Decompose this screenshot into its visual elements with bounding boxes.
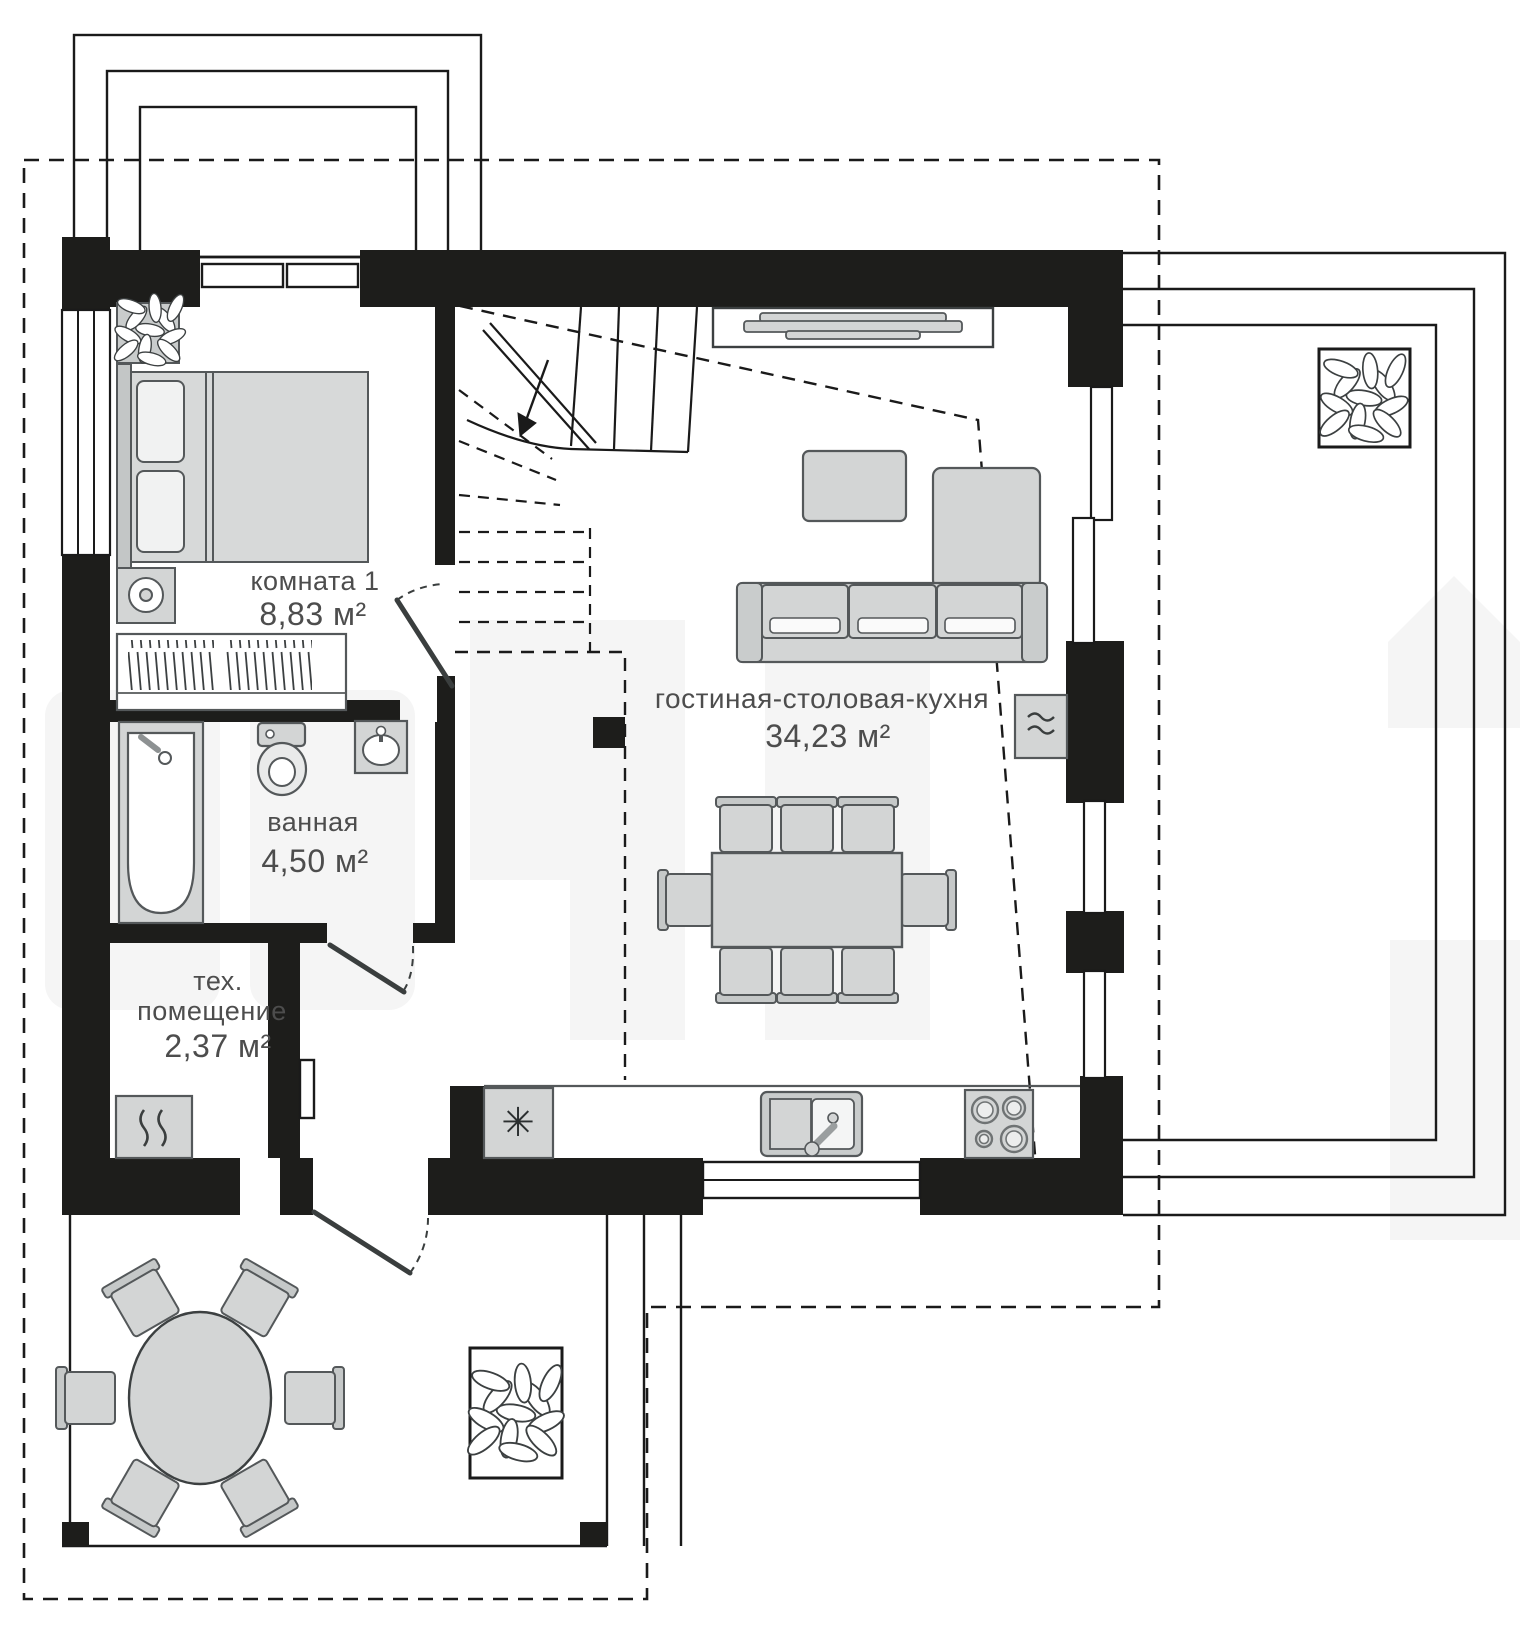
- bedroom-door: [397, 584, 452, 686]
- hangers: [224, 640, 312, 690]
- bedroom-area: 8,83 м²: [259, 596, 366, 632]
- tech-room-label-line2: помещение: [137, 996, 287, 1026]
- bedroom-label: комната 1: [250, 566, 379, 596]
- living-window: [1084, 971, 1105, 1078]
- terrace-bottom-plant: [464, 1348, 567, 1478]
- terrace-right-plant: [1316, 349, 1410, 447]
- bathroom-area: 4,50 м²: [261, 843, 368, 879]
- tech-room-fixtures: [116, 1096, 192, 1158]
- dining-table: [712, 853, 902, 947]
- fridge: ✳: [484, 1088, 553, 1158]
- entrance-door: [202, 264, 358, 287]
- hangers: [128, 640, 214, 690]
- sofa-ottoman: [803, 451, 906, 521]
- bathroom-label: ванная: [267, 807, 359, 837]
- stove: [965, 1090, 1033, 1158]
- column: [593, 717, 625, 748]
- sofa-chaise: [933, 468, 1040, 588]
- bedroom-furniture: [111, 292, 368, 710]
- pillow: [137, 471, 184, 552]
- tech-door: [300, 1060, 314, 1118]
- sofa: [737, 451, 1047, 662]
- kitchen: ✳: [484, 1086, 1080, 1158]
- terrace-bottom: [56, 1215, 681, 1546]
- living-room-area: 34,23 м²: [765, 718, 891, 754]
- living-room-label: гостиная-столовая-кухня: [655, 683, 989, 714]
- terrace-post: [62, 1522, 89, 1546]
- living-window: [1073, 518, 1094, 643]
- floor-plan-canvas: ✳ комната 1 8,83 м² ванная 4,50 м² тех: [0, 0, 1540, 1638]
- terrace-round-table: [129, 1312, 271, 1484]
- terrace-table-set: [56, 1258, 344, 1538]
- pillow: [137, 381, 184, 462]
- tech-room-area: 2,37 м²: [164, 1028, 271, 1064]
- living-window: [1084, 801, 1105, 913]
- bedroom-plant: [111, 292, 187, 368]
- floor-plan-drawing: ✳ комната 1 8,83 м² ванная 4,50 м² тех: [0, 0, 1540, 1638]
- living-furniture: [658, 308, 1067, 1003]
- stairs: [459, 307, 697, 652]
- bedside-stool: [117, 568, 175, 623]
- wardrobe: [117, 634, 346, 710]
- kitchen-window: [703, 1162, 920, 1198]
- kitchen-sink: [761, 1092, 862, 1156]
- tv-unit: [713, 308, 993, 347]
- terrace-door: [314, 1212, 428, 1273]
- bathroom-sink: [355, 721, 407, 773]
- fridge-icon: ✳: [501, 1101, 535, 1145]
- tech-room-label-line1: тех.: [193, 966, 243, 996]
- living-window: [1091, 387, 1112, 520]
- bathtub: [119, 722, 203, 923]
- boiler: [116, 1096, 192, 1158]
- terrace-post: [580, 1522, 607, 1546]
- heater: [1015, 695, 1067, 758]
- entrance-porch: [74, 35, 481, 257]
- bedroom-window: [62, 310, 110, 555]
- toilet: [258, 723, 306, 795]
- bed: [117, 364, 368, 568]
